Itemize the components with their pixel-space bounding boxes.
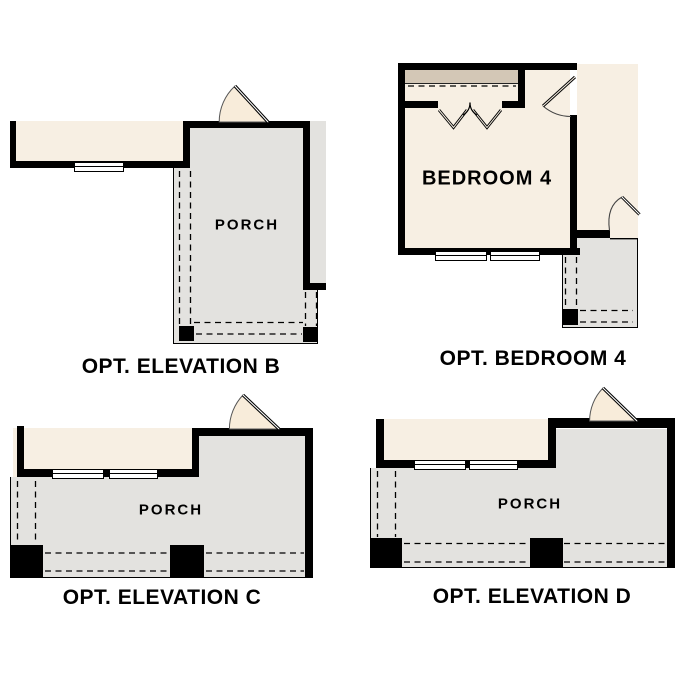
door-swing-icon [229, 395, 279, 429]
wall-top [398, 63, 577, 70]
wall-right-stub [303, 283, 326, 290]
door-swing-icon [590, 388, 637, 421]
window-mullion [53, 473, 103, 474]
plan-caption: OPT. BEDROOM 4 [440, 347, 627, 371]
window [74, 162, 124, 172]
window [414, 460, 466, 470]
closet-wall-bottom-left [405, 101, 438, 108]
porch-post [562, 309, 578, 325]
bedroom-fill [405, 70, 570, 248]
plan-caption: OPT. ELEVATION D [433, 585, 632, 609]
porch-post [303, 327, 318, 342]
floor-plan-sheet: PORCH OPT. ELEVATION B BEDROOM 4 OPT. BE… [0, 0, 687, 687]
porch-post [10, 545, 43, 577]
wall-bottom [376, 460, 556, 468]
plan-caption: OPT. ELEVATION C [63, 586, 262, 610]
window-mullion [491, 255, 539, 256]
window-mullion [436, 255, 486, 256]
window [490, 251, 540, 261]
window [469, 460, 518, 470]
porch-slab [10, 477, 305, 578]
porch-slab-upper [556, 429, 667, 470]
porch-slab-upper [199, 436, 305, 478]
porch-room-label: PORCH [498, 496, 562, 513]
hall-wall-bottom [577, 230, 610, 238]
porch-room-label: PORCH [139, 502, 203, 519]
wall-bottom [398, 248, 580, 255]
window-mullion [110, 473, 157, 474]
closet-wall-bottom-right [502, 101, 525, 108]
wall-left [398, 63, 405, 255]
wall-porch-divider [183, 121, 190, 168]
window [109, 469, 158, 479]
wall-porch-right [667, 418, 675, 568]
window [52, 469, 104, 479]
wall-bottom [17, 469, 199, 477]
porch-post [530, 538, 563, 568]
wall-porch-right [305, 428, 313, 578]
wall-porch-top [548, 418, 675, 428]
wall-porch-top [192, 428, 313, 436]
plan-caption: OPT. ELEVATION B [82, 355, 281, 379]
porch-slab [173, 168, 318, 344]
window-mullion [75, 166, 123, 167]
porch-slab [370, 468, 667, 568]
closet-shelf [405, 70, 518, 84]
porch-slab-upper [190, 128, 303, 170]
door-swing-icon [219, 86, 268, 122]
porch-post [170, 545, 204, 577]
wall-porch-top [183, 121, 310, 128]
bedroom-room-label: BEDROOM 4 [422, 168, 552, 191]
wall-porch-right [303, 121, 310, 290]
window-mullion [470, 464, 517, 465]
hall-fill [577, 64, 638, 238]
wall-right [570, 115, 577, 255]
porch-post [370, 538, 402, 568]
roof-strip [310, 121, 326, 283]
window-mullion [415, 464, 465, 465]
porch-post [179, 326, 194, 341]
porch-room-label: PORCH [215, 217, 279, 234]
window [435, 251, 487, 261]
